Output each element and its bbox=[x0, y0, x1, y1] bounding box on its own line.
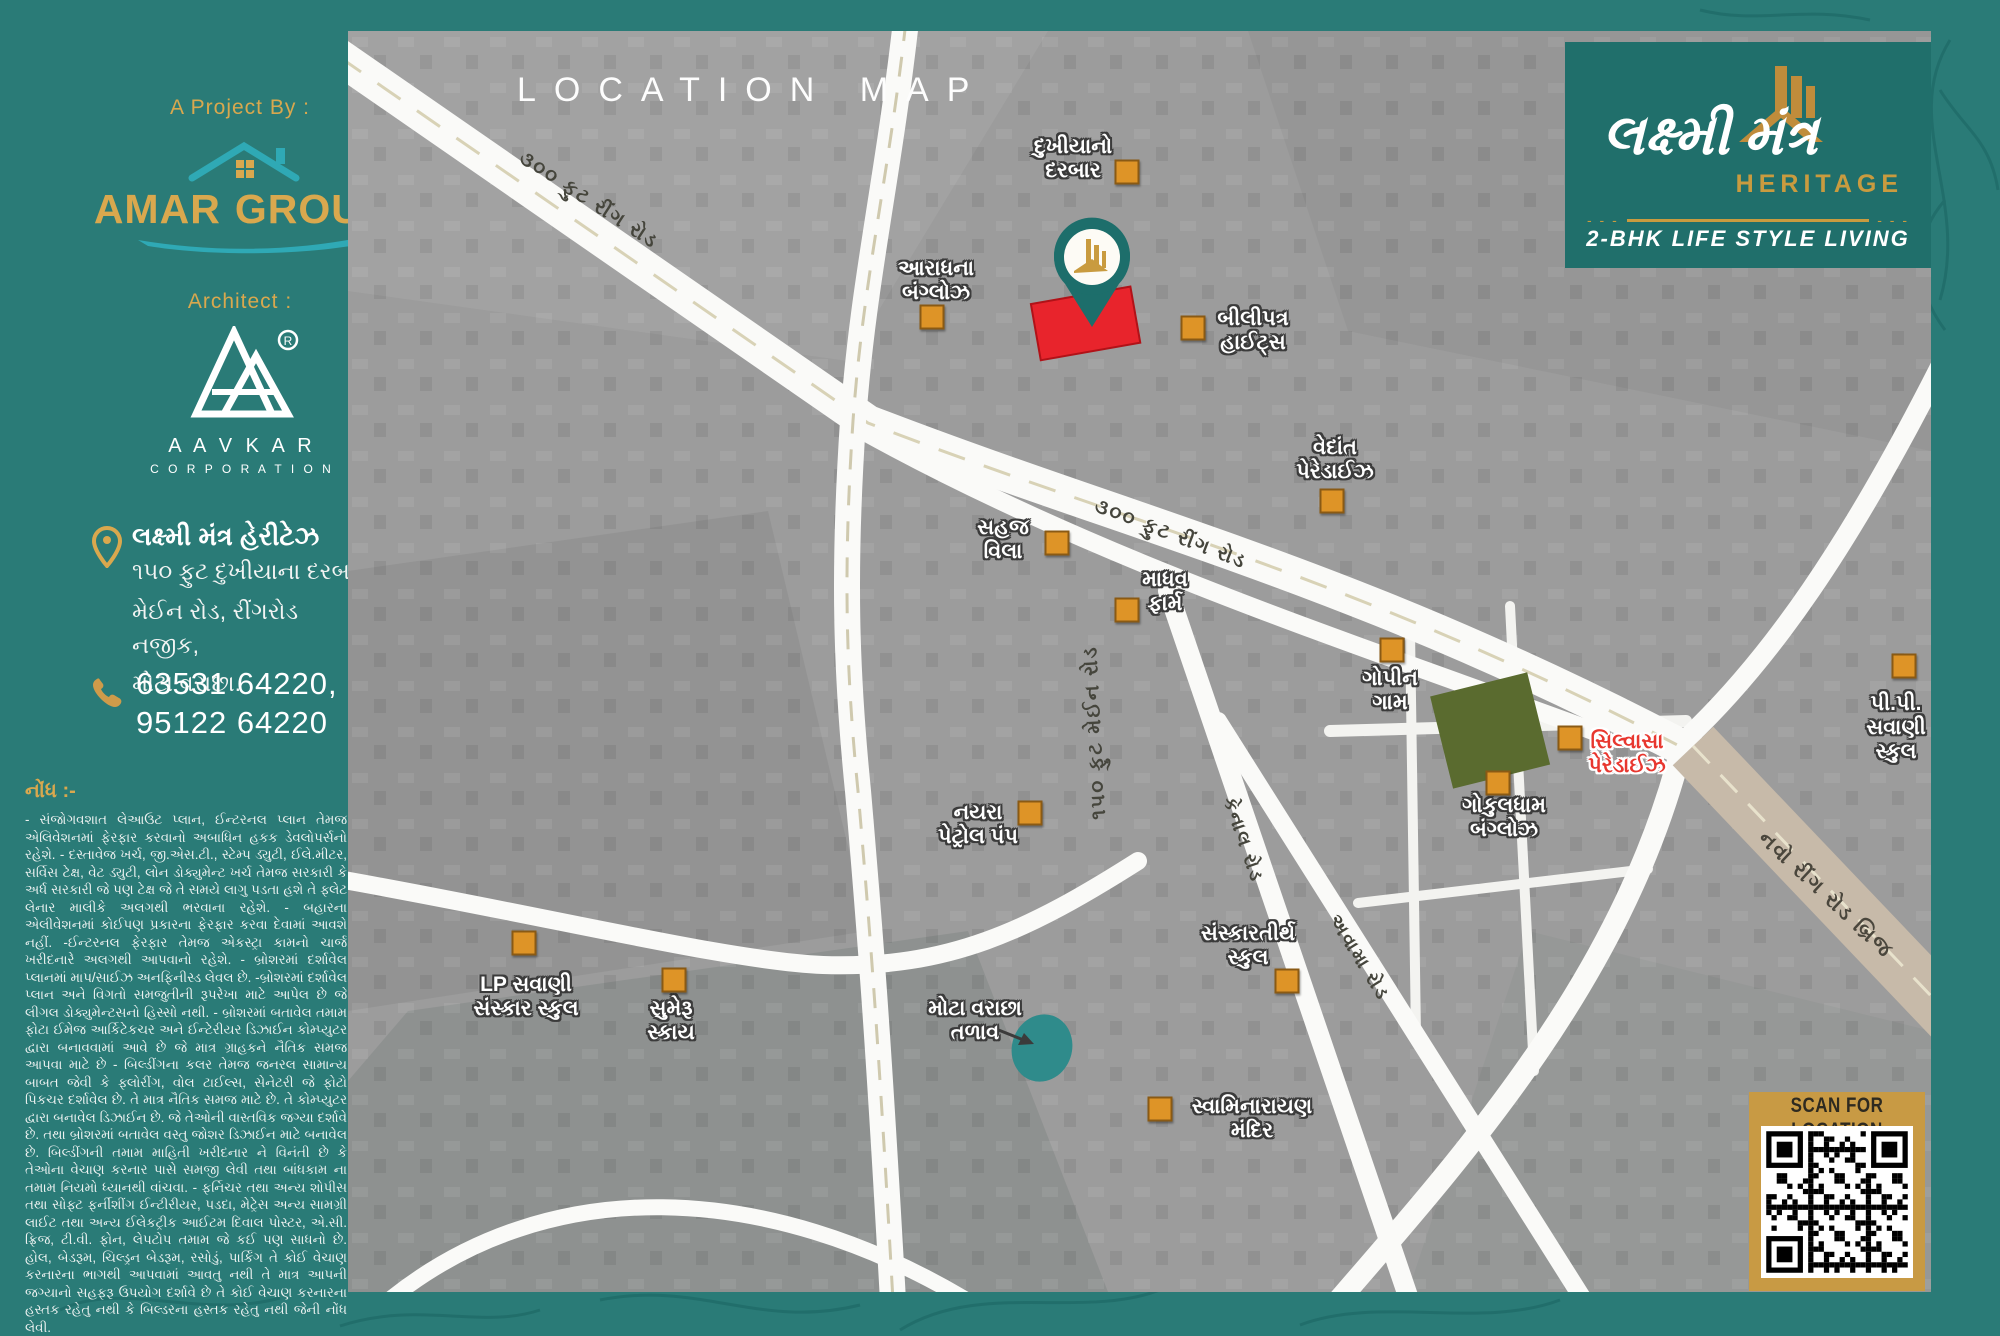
aavkar-triangle-icon: R bbox=[182, 326, 302, 426]
location-pin-icon bbox=[92, 526, 122, 568]
map-label-bilipatra-heights: બીલીપત્રહાઈટ્સ bbox=[1217, 307, 1288, 355]
map-marker bbox=[1486, 771, 1511, 796]
map-label-gopin-gam: ગોપીનગામ bbox=[1362, 667, 1418, 715]
map-marker bbox=[1558, 726, 1583, 751]
map-label-vedant-paradise: વેદાંતપેરેડાઈઝ bbox=[1296, 436, 1373, 484]
qr-box: SCAN FOR LOCATION bbox=[1749, 1092, 1925, 1291]
map-marker bbox=[1115, 160, 1140, 185]
phone-icon bbox=[90, 676, 124, 710]
address-title: લક્ષ્મી મંત્ર હેરીટેઝ bbox=[132, 518, 368, 554]
aavkar-name: A A V K A R bbox=[132, 435, 352, 458]
map-label-silvasa-paradise: સિલ્વાસાપેરેડાઈઝ bbox=[1588, 730, 1665, 778]
map-label-lp-savani-school: LP સવાણીસંસ્કાર સ્કુલ bbox=[473, 973, 578, 1021]
map-marker bbox=[920, 305, 945, 330]
aavkar-sub: C O R P O R A T I O N bbox=[132, 462, 352, 476]
map-title: LOCATION MAP bbox=[517, 71, 987, 110]
map-marker bbox=[1892, 654, 1917, 679]
map-marker bbox=[1018, 801, 1043, 826]
map-label-sanskartirth-school: સંસ્કારતીર્થસ્કુલ bbox=[1201, 922, 1295, 970]
map-marker bbox=[1115, 598, 1140, 623]
map-label-gokuldham-bunglows: ગોકુલધામબંગ્લોઝ bbox=[1462, 794, 1546, 842]
phone-number-1: 63531 64220, bbox=[136, 664, 338, 703]
map-area: LOCATION MAP ૩૦૦ ફુટ રીંગ રોડ ૩૦૦ ફુટ રી… bbox=[348, 31, 1931, 1292]
brand-name: લક્ષ્મી મંત્ર bbox=[1565, 104, 1855, 169]
map-label-mota-varachha-talav: મોટા વરાછાતળાવ bbox=[928, 997, 1022, 1045]
brand-sub: HERITAGE bbox=[1736, 170, 1903, 199]
map-marker bbox=[1148, 1097, 1173, 1122]
amar-logo-word1: AMAR bbox=[94, 186, 221, 233]
map-label-swaminarayan-mandir: સ્વામિનારાયણમંદિર bbox=[1192, 1095, 1313, 1143]
aavkar-logo: R A A V K A R C O R P O R A T I O N bbox=[132, 326, 352, 476]
amar-swoosh bbox=[118, 234, 366, 256]
map-label-madhav-farm: માધવફાર્મ bbox=[1142, 568, 1188, 616]
map-label-sahaj-villa: સહજવિલા bbox=[977, 516, 1029, 564]
note-heading: નોંધ :- bbox=[25, 780, 347, 803]
map-marker bbox=[662, 968, 687, 993]
map-marker bbox=[1380, 638, 1405, 663]
map-label-nayara-petrol-pump: નયરાપેટ્રોલ પંપ bbox=[938, 801, 1018, 849]
phone-number-2: 95122 64220 bbox=[136, 703, 338, 742]
aavkar-registered-mark: R bbox=[284, 334, 293, 348]
map-label-aradhana-bunglows: આરાધનાબંગ્લોઝ bbox=[898, 257, 974, 305]
address-line2: મેઈન રોડ, રીંગરોડ નજીક, bbox=[132, 594, 368, 662]
map-marker bbox=[1275, 969, 1300, 994]
address-line1: ૧૫૦ ફુટ દુખીયાના દરબાર bbox=[132, 554, 368, 588]
brand-box: લક્ષ્મી મંત્ર HERITAGE - - - - - - 2-BHK… bbox=[1565, 42, 1931, 268]
map-marker bbox=[512, 931, 537, 956]
map-label-sumeru-sky: સુમેરૂસ્કાય bbox=[647, 997, 695, 1045]
architect-label: Architect : bbox=[90, 290, 390, 314]
map-label-dukhiyano-darbar: દુખીયાનોદરબાર bbox=[1034, 135, 1112, 183]
map-marker bbox=[1320, 489, 1345, 514]
brand-tagline: 2-BHK LIFE STYLE LIVING bbox=[1565, 226, 1931, 252]
amar-group-logo: AMAR GROUP bbox=[118, 138, 366, 258]
qr-code bbox=[1761, 1126, 1913, 1278]
map-marker bbox=[1045, 531, 1070, 556]
note-body: - સંજોગવશાત લેઆઉટ પ્લાન, ઈન્ટરનલ પ્લાન ત… bbox=[25, 811, 347, 1336]
map-label-pp-savani-school: પી.પી.સવાણીસ્કુલ bbox=[1866, 692, 1926, 764]
map-marker bbox=[1181, 316, 1206, 341]
project-pin-icon bbox=[1046, 215, 1138, 329]
phone-numbers: 63531 64220, 95122 64220 bbox=[136, 664, 338, 742]
project-by-label: A Project By : bbox=[90, 96, 390, 120]
location-map-poster: { "sidebar": { "project_by": "A Project … bbox=[0, 0, 2000, 1334]
note-section: નોંધ :- - સંજોગવશાત લેઆઉટ પ્લાન, ઈન્ટરનલ… bbox=[25, 780, 347, 1336]
